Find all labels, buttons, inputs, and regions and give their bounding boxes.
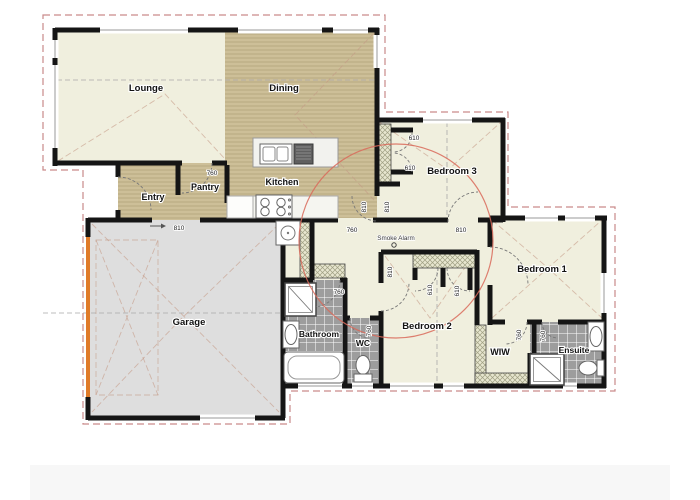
room-label-kitchen: Kitchen xyxy=(265,177,298,187)
dim-bathroom-door: 760 xyxy=(334,289,345,296)
room-label-bedroom2: Bedroom 2 xyxy=(402,321,452,332)
bedroom3-wardrobe xyxy=(379,124,391,182)
smoke-alarm-label: Smoke Alarm xyxy=(377,235,414,242)
room-label-ensuite: Ensuite xyxy=(559,345,590,355)
dim-bedroom3-door: 810 xyxy=(456,227,467,234)
dim-garage-entry-door: 810 xyxy=(174,225,185,232)
room-label-bathroom: Bathroom xyxy=(299,329,340,339)
room-label-pantry: Pantry xyxy=(191,182,219,192)
dim-closet2-door-right: 610 xyxy=(454,285,461,296)
fridge-space xyxy=(227,196,253,218)
dim-ensuite-door: 760 xyxy=(540,330,547,341)
dim-wardrobe3-bottom: 610 xyxy=(405,165,416,172)
ensuite-toilet xyxy=(579,361,597,375)
dim-pantry-door: 760 xyxy=(207,170,218,177)
dim-closet2-door-left: 610 xyxy=(427,284,434,295)
dining-kitchen-floor xyxy=(225,30,377,220)
floor-plan-svg: Lounge Dining Entry Pantry Kitchen Bedro… xyxy=(0,0,700,500)
linen-cupboard-horizontal xyxy=(312,264,345,278)
lounge-floor xyxy=(55,30,225,163)
room-label-entry: Entry xyxy=(141,192,164,202)
room-label-wiw: WIW xyxy=(490,347,510,357)
wiw-shelves-south xyxy=(475,373,529,385)
room-label-lounge: Lounge xyxy=(129,83,163,94)
floor-plan-page: Lounge Dining Entry Pantry Kitchen Bedro… xyxy=(0,0,700,500)
room-label-bedroom1: Bedroom 1 xyxy=(517,264,567,275)
page-shadow xyxy=(30,465,670,500)
room-label-dining: Dining xyxy=(269,83,299,94)
room-label-bedroom3: Bedroom 3 xyxy=(427,166,477,177)
dim-bedroom2-door: 810 xyxy=(387,266,394,277)
dim-wardrobe3-top: 610 xyxy=(409,135,420,142)
dim-dining-door-east: 810 xyxy=(384,201,391,212)
bedroom2-wardrobe xyxy=(413,253,475,268)
dim-wc-door: 760 xyxy=(366,325,373,336)
floor-fills xyxy=(30,30,670,500)
dim-kitchen-opening: 760 xyxy=(347,227,358,234)
dim-wiw-door: 760 xyxy=(516,329,523,340)
room-label-wc: WC xyxy=(356,338,370,348)
cooktop xyxy=(256,195,292,218)
room-label-garage: Garage xyxy=(173,317,206,328)
dim-dining-door-west: 810 xyxy=(361,201,368,212)
wc-toilet xyxy=(356,356,370,375)
